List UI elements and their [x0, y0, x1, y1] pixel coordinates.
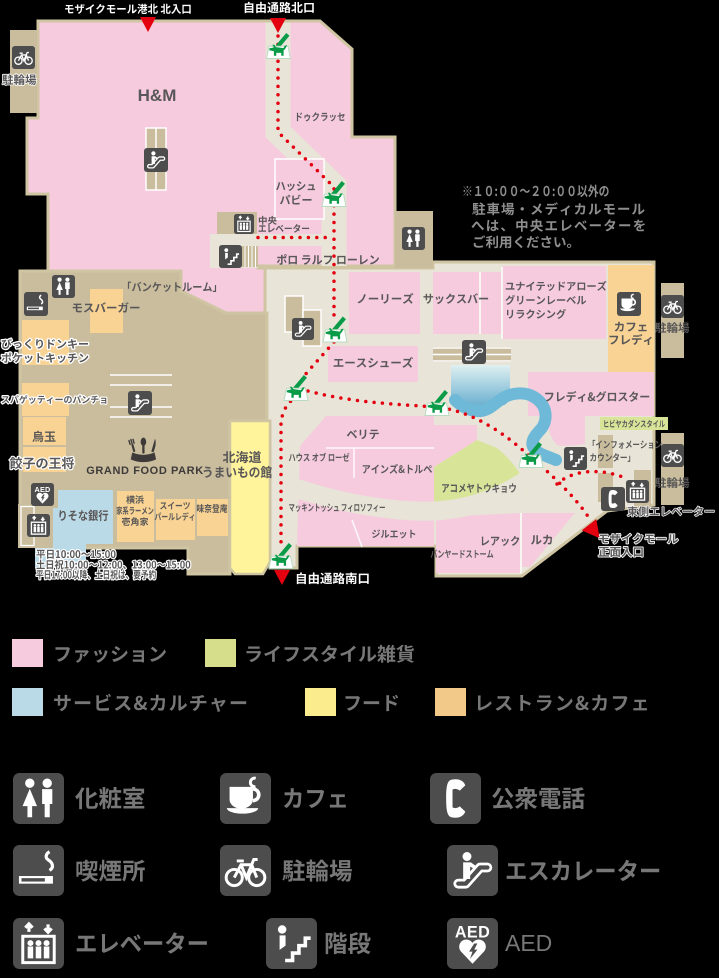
svg-text:GRAND FOOD PARK: GRAND FOOD PARK — [86, 465, 204, 477]
svg-text:H&M: H&M — [138, 86, 177, 105]
svg-text:AED: AED — [505, 930, 552, 956]
